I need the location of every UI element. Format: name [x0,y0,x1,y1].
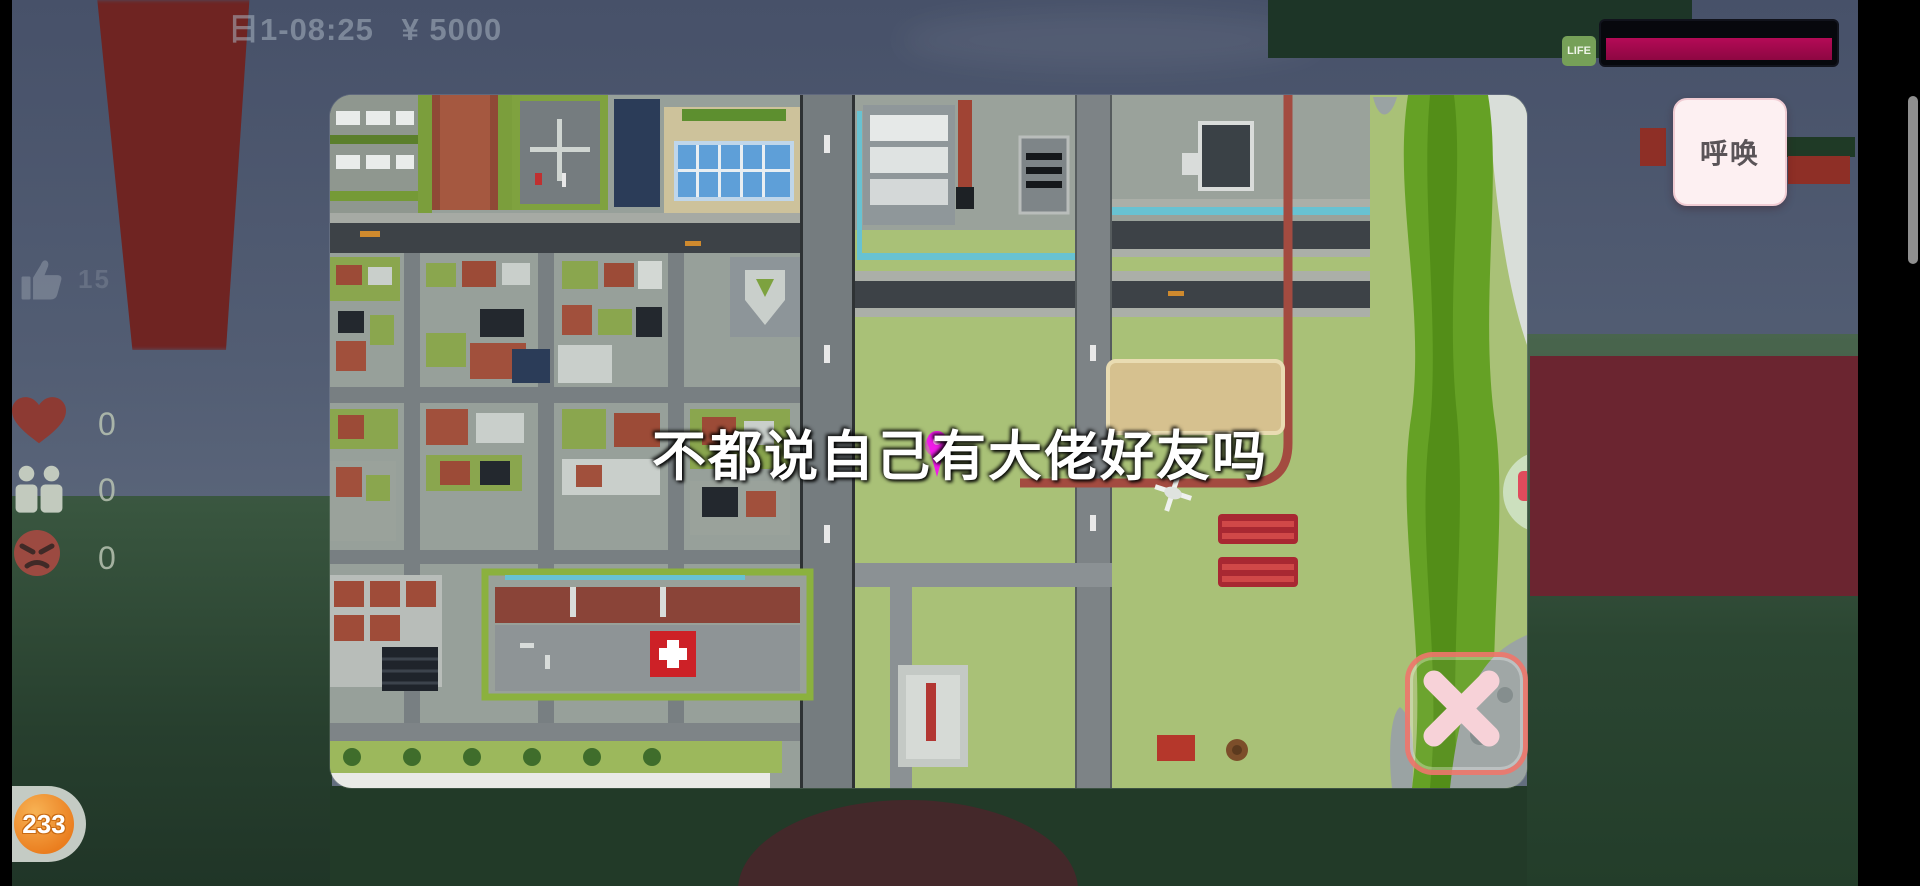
people-count: 0 [98,472,116,509]
badge-233-circle: 233 [14,794,74,854]
red-crate [1157,735,1195,761]
arrow-monument [730,257,800,337]
badge-233-text: 233 [22,809,65,840]
people-icon [14,464,64,521]
cloud [900,10,1320,70]
north-road-right [1112,199,1370,257]
day-time-money: 日1-08:25 ¥ 5000 [228,4,502,49]
thumbs-up-icon [20,256,64,307]
angry-face-icon [12,528,62,583]
day-time: 日1-08:25 [228,12,374,47]
call-button[interactable]: 呼唤 [1673,98,1787,206]
subtitle-caption: 不都说自己有大佬好友吗 [0,412,1920,491]
school-lots [330,95,432,213]
pool-building [664,107,802,213]
navy-building [614,99,660,207]
main-road-left [330,213,800,253]
game-screen: 不都说自己有大佬好友吗 日1-08:25 ¥ 5000 LIFE 呼唤 15 0 [0,0,1920,886]
helipad-yard [512,95,608,210]
green-box-behind-button [1783,137,1855,157]
close-icon [1410,657,1513,760]
angry-count: 0 [98,540,116,577]
life-bar-fill [1606,38,1832,60]
badge-233[interactable]: 233 [0,786,86,862]
park-trees [330,723,800,788]
like-count-faint: 15 [78,264,111,295]
map-close-button[interactable] [1405,652,1528,775]
terracotta-building [432,95,512,210]
scrollbar-thumb[interactable] [1908,96,1918,264]
life-label: LIFE [1562,36,1596,66]
red-box-right [1788,156,1850,184]
hospital-compound [485,572,810,697]
shrine [898,665,968,767]
red-box-small [1640,128,1666,166]
heart-count: 0 [98,406,116,443]
money: ¥ 5000 [401,12,502,47]
heart-icon [12,396,66,451]
black-band-left [0,0,12,886]
life-bar [1601,21,1837,65]
